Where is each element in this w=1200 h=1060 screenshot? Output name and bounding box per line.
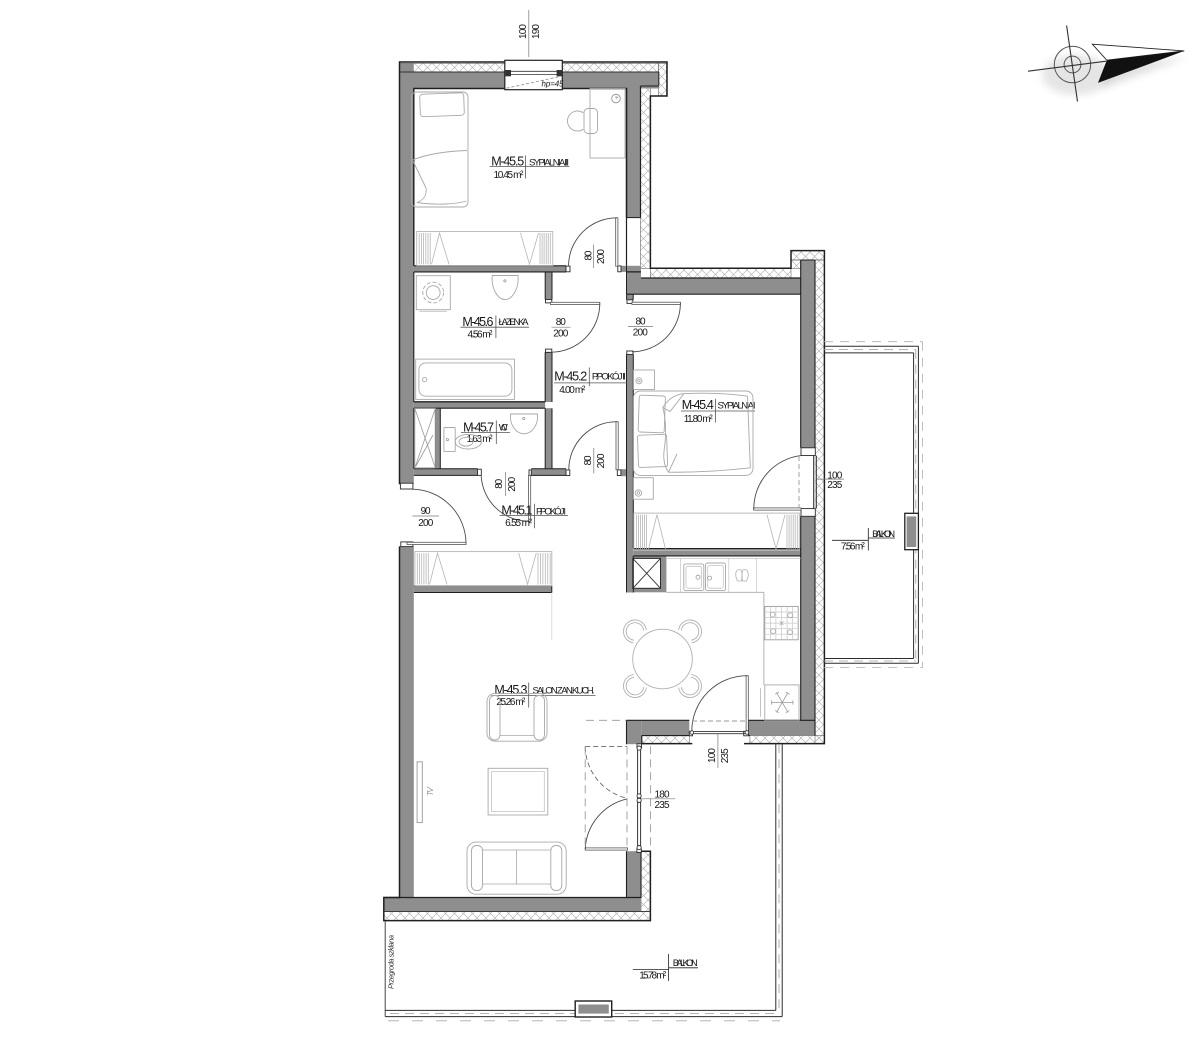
svg-text:80: 80	[583, 455, 594, 465]
svg-text:80: 80	[556, 317, 566, 328]
svg-text:235: 235	[827, 480, 842, 491]
svg-text:80: 80	[583, 250, 594, 260]
svg-text:15.78 m²: 15.78 m²	[639, 971, 667, 982]
svg-text:200: 200	[633, 328, 648, 339]
svg-text:TV: TV	[425, 786, 435, 796]
svg-text:25.26 m²: 25.26 m²	[496, 697, 526, 708]
svg-text:80: 80	[636, 317, 646, 328]
svg-text:SALON Z AN.KUCH.: SALON Z AN.KUCH.	[533, 686, 595, 697]
svg-text:190: 190	[531, 24, 542, 39]
svg-text:100: 100	[707, 748, 718, 763]
svg-text:1.63 m²: 1.63 m²	[467, 434, 494, 445]
svg-text:90: 90	[421, 506, 431, 517]
svg-text:4.56 m²: 4.56 m²	[468, 330, 494, 341]
svg-text:11.80 m²: 11.80 m²	[684, 414, 714, 425]
svg-text:7.56 m²: 7.56 m²	[841, 542, 866, 553]
svg-text:M-45.2: M-45.2	[554, 370, 587, 384]
svg-text:200: 200	[596, 249, 607, 264]
svg-text:Przegroda szklana: Przegroda szklana	[386, 935, 395, 989]
svg-text:M-45.4: M-45.4	[682, 398, 714, 412]
svg-text:80: 80	[494, 478, 505, 488]
svg-text:235: 235	[655, 800, 670, 811]
svg-text:4.00 m²: 4.00 m²	[559, 385, 586, 396]
svg-text:10.45 m²: 10.45 m²	[494, 170, 525, 181]
svg-text:ŁAZIENKA: ŁAZIENKA	[499, 317, 530, 328]
svg-text:200: 200	[596, 453, 607, 468]
svg-text:M-45.3: M-45.3	[494, 683, 527, 697]
svg-text:BALKON: BALKON	[673, 958, 698, 969]
svg-text:P.POKÓJ II: P.POKÓJ II	[592, 372, 626, 383]
svg-text:200: 200	[418, 518, 433, 529]
svg-text:6.55 m²: 6.55 m²	[505, 518, 533, 529]
svg-text:hp=45: hp=45	[542, 79, 565, 88]
svg-text:180: 180	[655, 789, 670, 800]
svg-text:235: 235	[720, 748, 731, 763]
svg-text:200: 200	[553, 329, 568, 340]
svg-text:SYPIALNIA I: SYPIALNIA I	[718, 401, 756, 412]
svg-text:100: 100	[518, 24, 529, 39]
svg-text:200: 200	[507, 476, 518, 491]
svg-text:WC: WC	[499, 422, 508, 433]
